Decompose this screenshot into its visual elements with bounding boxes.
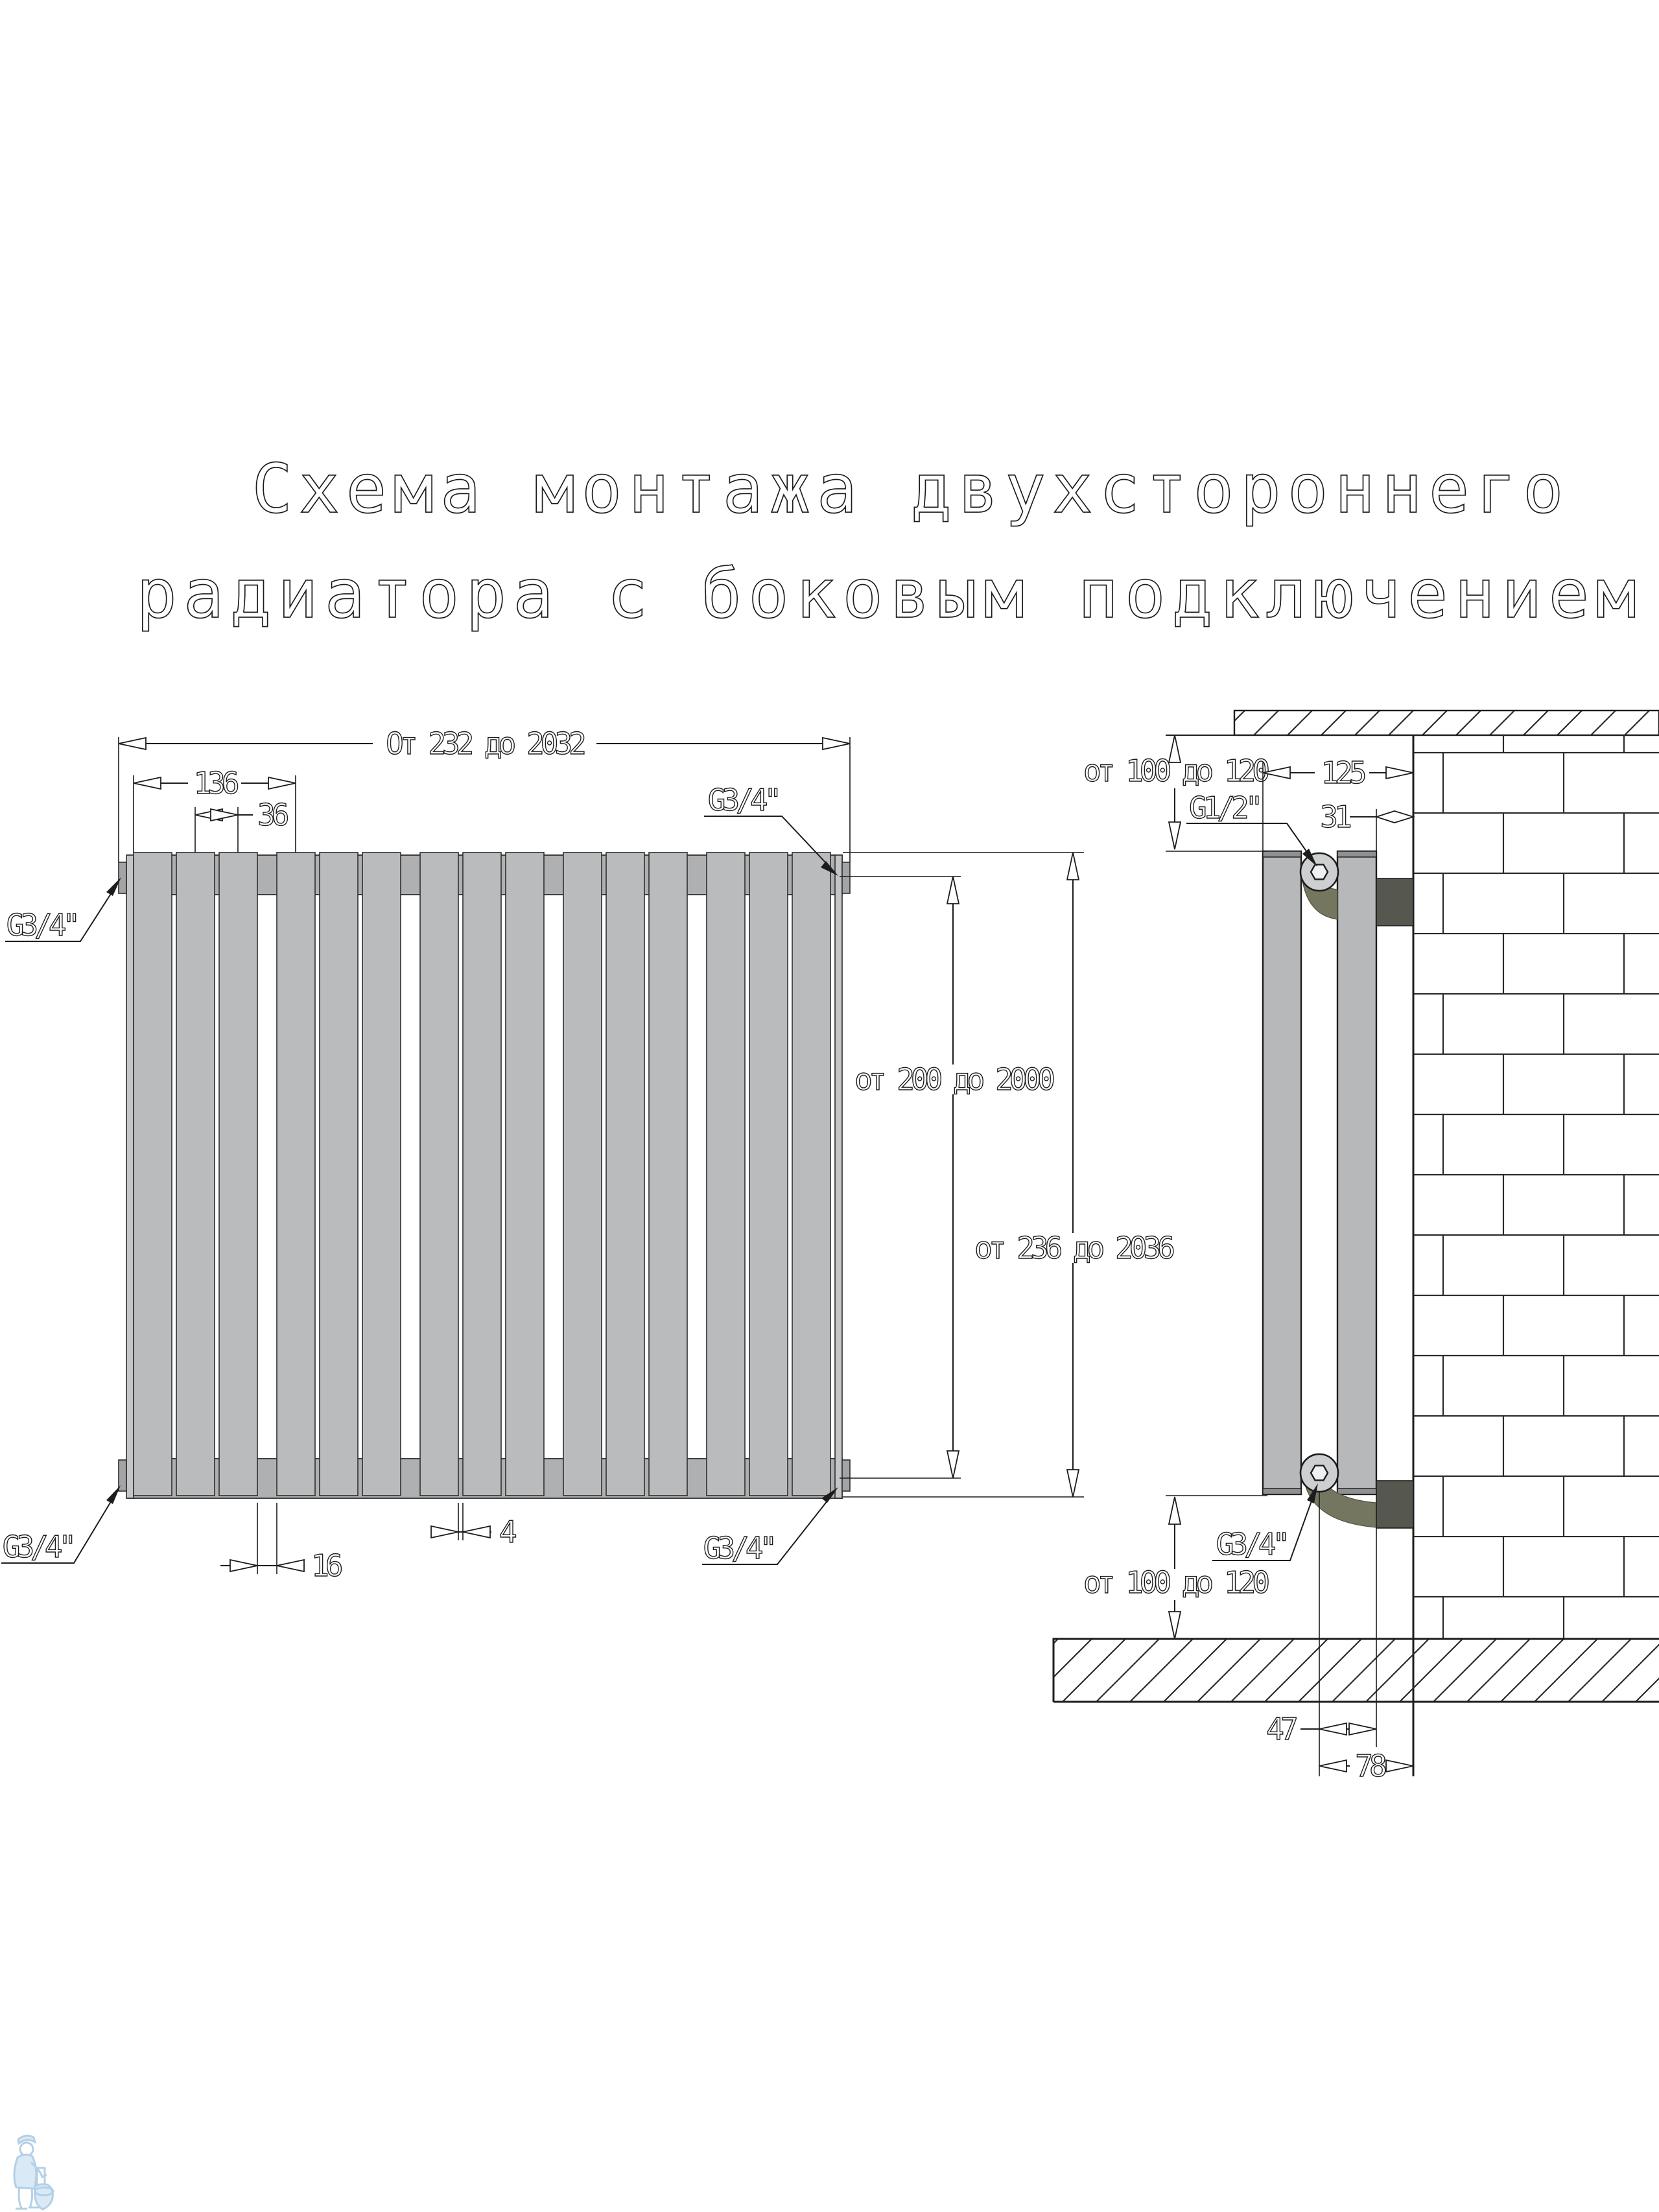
dim-height-body: от 200 до 2000 bbox=[840, 877, 1053, 1478]
dim-bottom-clearance: от 100 до 120 bbox=[1083, 1496, 1268, 1639]
left-end-cap bbox=[126, 855, 134, 1498]
bottom-wall-bracket bbox=[1376, 1481, 1413, 1528]
dim-section-gap: 4 bbox=[431, 1503, 516, 1549]
bottom-valve-hex-socket bbox=[1311, 1466, 1328, 1481]
air-vent-hex-socket bbox=[1311, 865, 1328, 880]
front-panel-profile bbox=[1263, 851, 1301, 1494]
dim-top-clearance-label: от 100 до 120 bbox=[1083, 753, 1268, 788]
air-vent-label: G1/2" bbox=[1189, 790, 1259, 825]
drawing-title: Схема монтажа двухстороннего радиатора с… bbox=[136, 449, 1643, 633]
label-conn-bottom-left: G3/4" bbox=[1, 1485, 121, 1564]
front-view: От 232 до 2032 136 36 от 200 до 2000 bbox=[1, 726, 1173, 1583]
conn-top-left-label: G3/4" bbox=[6, 908, 76, 943]
schematic-drawing: Схема монтажа двухстороннего радиатора с… bbox=[0, 0, 1659, 2212]
dim-wall-gap: 31 bbox=[1320, 799, 1413, 851]
dim-group-gap-label: 16 bbox=[311, 1548, 342, 1583]
ceiling-slab bbox=[1234, 711, 1659, 735]
dim-axis-to-wall: 78 bbox=[1319, 1748, 1413, 1783]
dim-section-pitch-label: 36 bbox=[257, 797, 288, 832]
drawing-page: { "title": { "line1": "Схема монтажа дву… bbox=[0, 0, 1659, 2212]
stub-top-right bbox=[842, 862, 850, 893]
title-line-1: Схема монтажа двухстороннего bbox=[252, 449, 1570, 528]
right-end-cap bbox=[835, 855, 842, 1498]
dim-group-gap: 16 bbox=[220, 1503, 342, 1583]
dim-section-pitch: 36 bbox=[195, 797, 288, 853]
stub-bottom-right bbox=[842, 1460, 850, 1491]
radiator-sections bbox=[134, 853, 830, 1496]
dim-height-overall-label: от 236 до 2036 bbox=[974, 1230, 1173, 1265]
dim-mount-span-label: 136 bbox=[193, 766, 237, 801]
rear-panel-profile bbox=[1337, 851, 1376, 1494]
plumber-watermark bbox=[14, 2136, 53, 2209]
dim-wall-gap-label: 31 bbox=[1320, 799, 1350, 834]
conn-top-right-label: G3/4" bbox=[708, 782, 778, 818]
floor-slab bbox=[1053, 1639, 1659, 1702]
dim-height-overall: от 236 до 2036 bbox=[843, 853, 1173, 1497]
top-wall-bracket bbox=[1376, 878, 1413, 926]
dim-axis-to-panel-label: 47 bbox=[1266, 1712, 1297, 1747]
dim-section-gap-label: 4 bbox=[499, 1514, 516, 1549]
stub-top-left bbox=[119, 862, 126, 893]
conn-bottom-left-label: G3/4" bbox=[3, 1529, 73, 1564]
dim-wall-to-front-label: 125 bbox=[1321, 755, 1365, 790]
brick-wall bbox=[1413, 735, 1659, 1639]
title-line-2: радиатора с боковым подключением bbox=[136, 554, 1643, 633]
label-conn-bottom-right: G3/4" bbox=[702, 1487, 838, 1566]
conn-bottom-right-label: G3/4" bbox=[703, 1531, 773, 1566]
dim-bottom-clearance-label: от 100 до 120 bbox=[1083, 1565, 1268, 1600]
dim-height-body-label: от 200 до 2000 bbox=[854, 1062, 1053, 1097]
label-conn-top-left: G3/4" bbox=[5, 877, 121, 943]
bottom-thread-label: G3/4" bbox=[1216, 1527, 1286, 1562]
dim-overall-width-label: От 232 до 2032 bbox=[386, 726, 584, 761]
dim-axis-to-wall-label: 78 bbox=[1355, 1748, 1385, 1783]
